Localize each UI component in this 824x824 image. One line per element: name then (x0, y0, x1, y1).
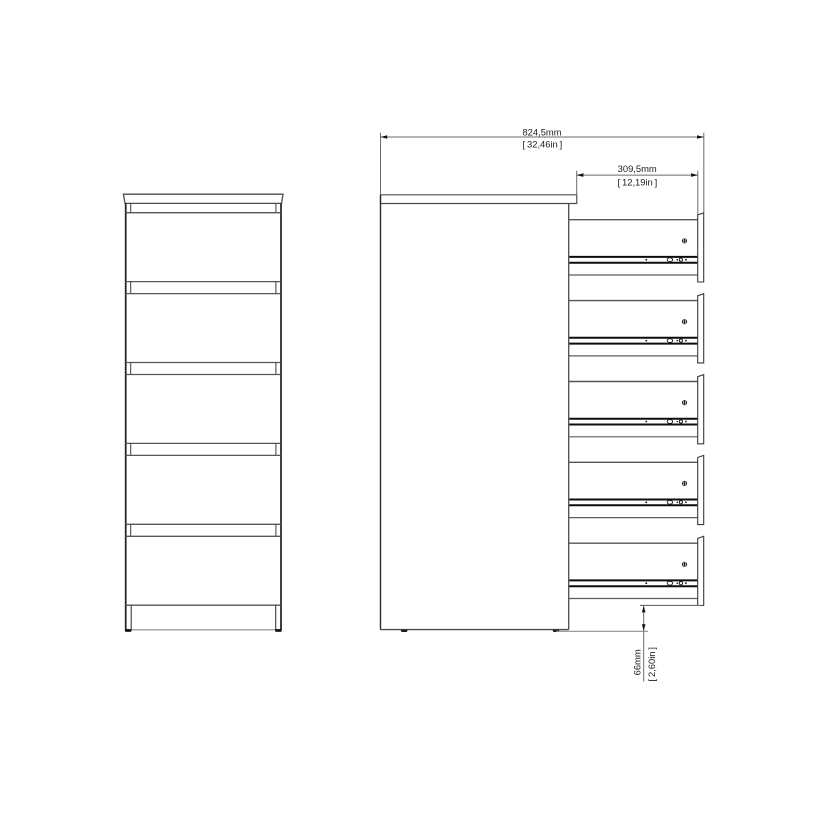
svg-text:[ 2,60in ]: [ 2,60in ] (646, 647, 657, 682)
svg-text:[ 32,46in ]: [ 32,46in ] (523, 139, 563, 150)
svg-text:66mm: 66mm (632, 649, 643, 675)
svg-text:[ 12,19in ]: [ 12,19in ] (618, 177, 658, 188)
svg-text:824,5mm: 824,5mm (522, 127, 561, 138)
svg-text:309,5mm: 309,5mm (618, 163, 657, 174)
